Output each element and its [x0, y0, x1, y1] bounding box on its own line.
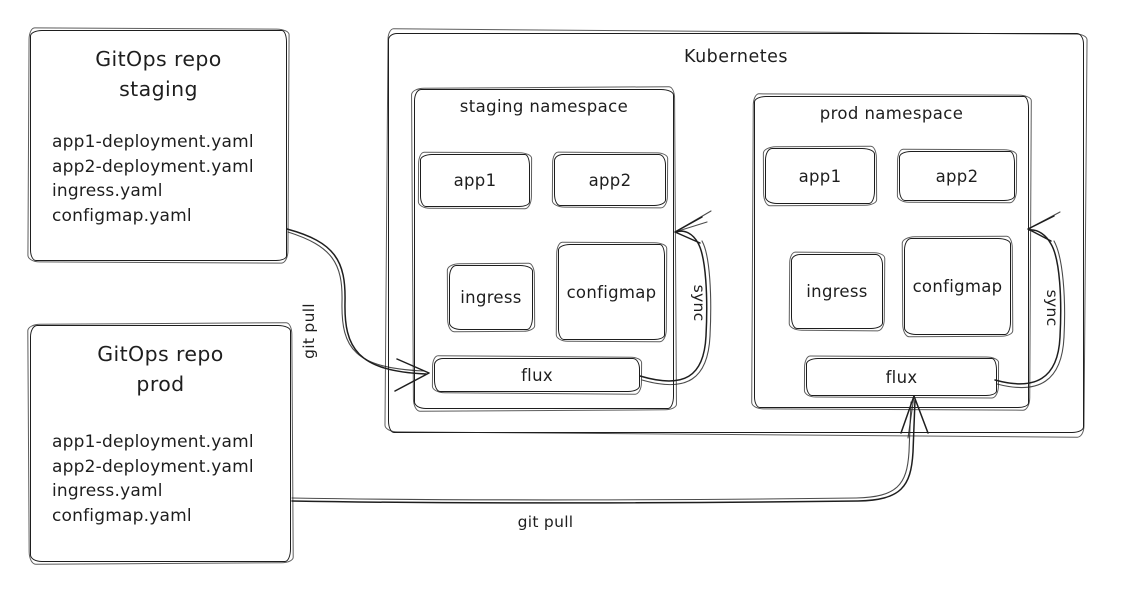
file-item: app1-deployment.yaml: [52, 130, 254, 155]
file-item: ingress.yaml: [52, 179, 254, 204]
configmap-label: configmap: [913, 277, 1003, 296]
app2-label: app2: [589, 171, 632, 190]
repo-title: GitOps repo prod: [31, 339, 290, 399]
file-item: app2-deployment.yaml: [52, 455, 254, 480]
ingress-box: ingress: [449, 265, 533, 330]
prod-sync-label: sync: [1043, 273, 1061, 343]
ingress-label: ingress: [806, 282, 867, 301]
flux-label: flux: [886, 368, 918, 387]
gitops-repo-staging-box: GitOps repo staging app1-deployment.yaml…: [30, 30, 287, 261]
repo-title-line-1: GitOps repo: [31, 44, 286, 74]
repo-title-line-2: prod: [31, 369, 290, 399]
app1-box: app1: [765, 148, 875, 204]
staging-sync-label: sync: [690, 268, 708, 338]
app1-label: app1: [799, 167, 842, 186]
prod-namespace-box: prod namespace app1 app2 ingress configm…: [754, 96, 1029, 408]
repo-title-line-2: staging: [31, 74, 286, 104]
file-item: configmap.yaml: [52, 504, 254, 529]
prod-git-pull-label: git pull: [498, 513, 593, 531]
staging-git-pull-label: git pull: [300, 291, 318, 371]
file-item: ingress.yaml: [52, 479, 254, 504]
file-item: app1-deployment.yaml: [52, 430, 254, 455]
staging-namespace-label: staging namespace: [415, 97, 673, 116]
app2-label: app2: [936, 167, 979, 186]
kubernetes-box: Kubernetes staging namespace app1 app2 i…: [388, 33, 1084, 433]
ingress-label: ingress: [460, 288, 521, 307]
app1-box: app1: [420, 154, 530, 207]
prod-namespace-label: prod namespace: [755, 104, 1028, 123]
configmap-label: configmap: [567, 283, 657, 302]
app2-box: app2: [899, 151, 1015, 201]
gitops-repo-prod-box: GitOps repo prod app1-deployment.yaml ap…: [30, 325, 291, 562]
configmap-box: configmap: [904, 238, 1011, 335]
kubernetes-label: Kubernetes: [389, 47, 1083, 67]
ingress-box: ingress: [791, 254, 883, 329]
file-item: app2-deployment.yaml: [52, 155, 254, 180]
file-item: configmap.yaml: [52, 204, 254, 229]
flux-box: flux: [434, 358, 640, 392]
file-list: app1-deployment.yaml app2-deployment.yam…: [52, 130, 254, 228]
repo-title-line-1: GitOps repo: [31, 339, 290, 369]
repo-title: GitOps repo staging: [31, 44, 286, 104]
configmap-box: configmap: [558, 244, 665, 340]
flux-label: flux: [521, 366, 553, 385]
app1-label: app1: [454, 171, 497, 190]
app2-box: app2: [554, 154, 666, 206]
flux-box: flux: [806, 358, 997, 396]
staging-namespace-box: staging namespace app1 app2 ingress conf…: [414, 89, 674, 409]
file-list: app1-deployment.yaml app2-deployment.yam…: [52, 430, 254, 528]
diagram-canvas: GitOps repo staging app1-deployment.yaml…: [0, 0, 1128, 605]
